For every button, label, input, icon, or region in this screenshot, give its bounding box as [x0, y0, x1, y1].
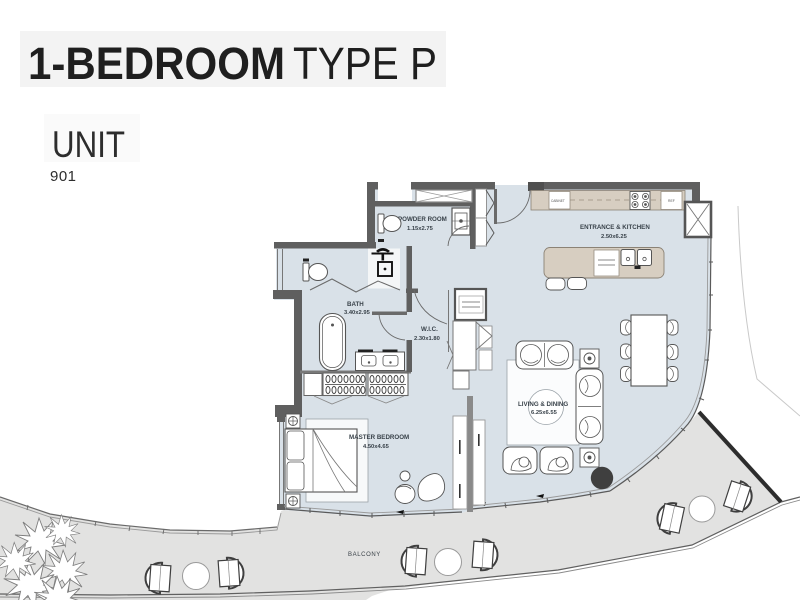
svg-text:1.15x2.75: 1.15x2.75: [407, 226, 434, 232]
svg-text:BATH: BATH: [347, 301, 364, 308]
svg-text:901: 901: [50, 168, 77, 185]
svg-text:MASTER BEDROOM: MASTER BEDROOM: [349, 434, 409, 441]
svg-text:CABINET: CABINET: [551, 199, 565, 203]
svg-text:TYPE P: TYPE P: [293, 38, 437, 89]
svg-text:ENTRANCE & KITCHEN: ENTRANCE & KITCHEN: [580, 224, 650, 231]
svg-text:6.25x6.55: 6.25x6.55: [531, 410, 558, 416]
svg-text:2.30x1.80: 2.30x1.80: [414, 336, 440, 342]
svg-text:3.40x2.95: 3.40x2.95: [344, 310, 371, 316]
svg-text:2.50x6.25: 2.50x6.25: [601, 234, 628, 240]
svg-text:UNIT: UNIT: [52, 124, 125, 165]
svg-text:4.50x4.65: 4.50x4.65: [363, 444, 390, 450]
svg-text:POWDER ROOM: POWDER ROOM: [398, 216, 447, 223]
svg-text:W.I.C.: W.I.C.: [421, 326, 438, 333]
svg-text:LIVING & DINING: LIVING & DINING: [518, 401, 568, 408]
svg-text:BALCONY: BALCONY: [348, 552, 381, 558]
svg-text:1-BEDROOM: 1-BEDROOM: [28, 38, 285, 89]
svg-text:REF: REF: [668, 199, 675, 203]
